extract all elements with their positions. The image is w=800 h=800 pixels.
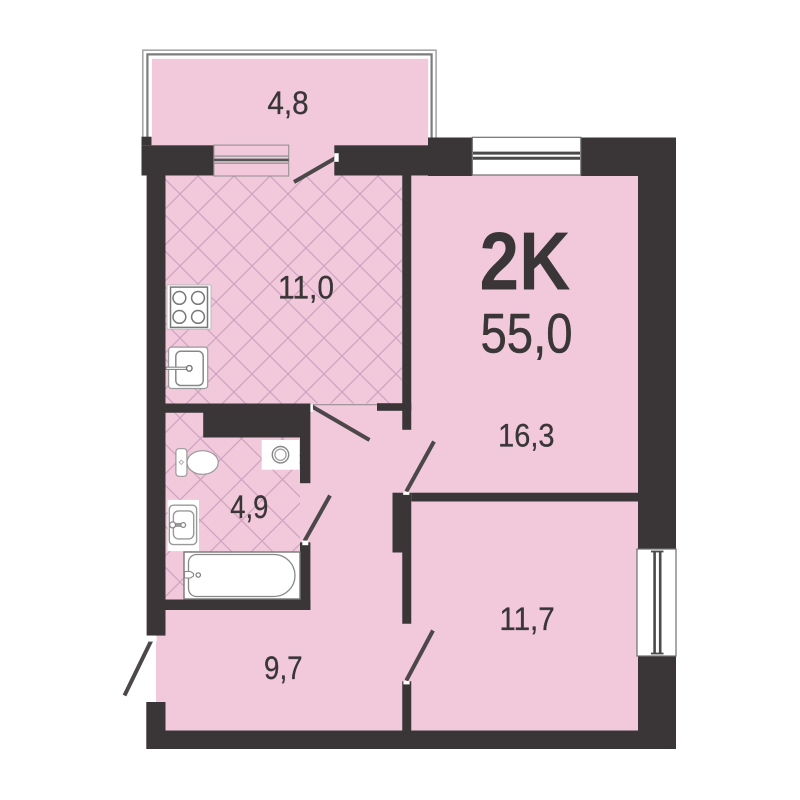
svg-text:4,8: 4,8 — [267, 85, 308, 121]
svg-text:4,9: 4,9 — [230, 489, 268, 525]
svg-text:2K: 2K — [480, 215, 571, 308]
svg-text:9,7: 9,7 — [264, 650, 303, 686]
svg-text:16,3: 16,3 — [498, 417, 554, 453]
svg-text:11,7: 11,7 — [499, 601, 554, 637]
svg-text:55,0: 55,0 — [481, 302, 573, 365]
svg-text:11,0: 11,0 — [278, 269, 334, 305]
